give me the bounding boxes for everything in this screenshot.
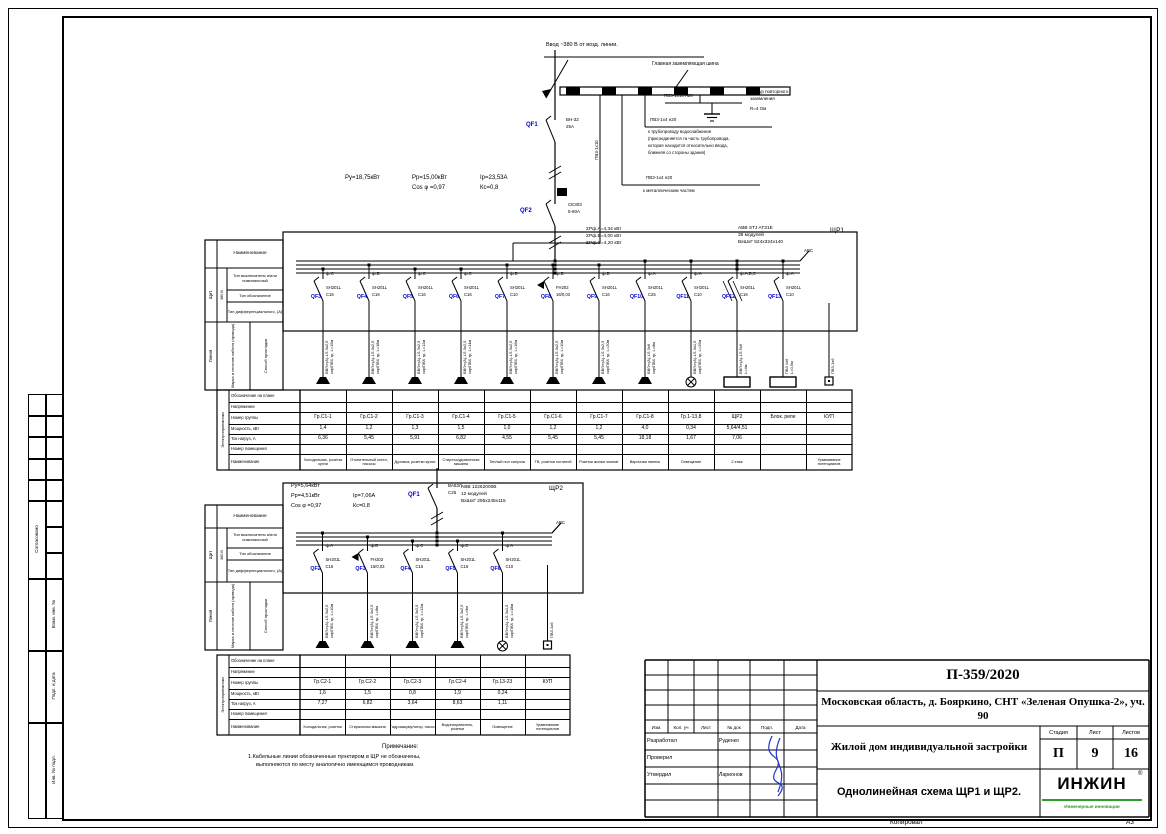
- meter-type-1: СЕ303: [568, 202, 582, 207]
- p1-ip: Iр=23,53А: [480, 175, 508, 181]
- table-cell: Водонагреватель, розетки: [435, 719, 481, 735]
- cable-label: ВВГнг(А)-LS 3х2,5скр/ПВХ тр, L=10м: [555, 334, 565, 374]
- p2-pp: Рр=4,51кВт: [291, 493, 320, 499]
- table-cell: [760, 454, 807, 470]
- breaker-hook: [590, 277, 595, 281]
- qf2-blade: [546, 204, 555, 226]
- qf-label: QF4: [385, 566, 411, 572]
- cable-label-line: скр/ПВХ тр, L=10м: [329, 598, 334, 638]
- service-drop: [546, 60, 568, 98]
- load-kup-icon: [828, 380, 830, 382]
- breaker-type: SH201L: [418, 285, 433, 290]
- header-liniya: Линия: [205, 582, 217, 650]
- cable-label-line: скр/ПВХ тр, L=18м: [509, 598, 514, 638]
- header-volt: 380 В: [217, 268, 227, 322]
- phase-label: ф.В: [371, 543, 379, 548]
- p1-pp: Рр=15,00кВт: [412, 175, 447, 181]
- lists-value: 16: [1113, 740, 1149, 768]
- header-shchit: Щит: [205, 268, 217, 322]
- gzsh-segment: [710, 87, 724, 95]
- doc-number: П-359/2020: [818, 661, 1148, 690]
- name-approved: Ларионов: [719, 772, 742, 778]
- breaker-hook: [314, 277, 319, 281]
- breaker-hook: [728, 277, 733, 281]
- load-socket-icon: [546, 377, 560, 384]
- ground-resistance: R=4 Ом: [750, 106, 766, 111]
- table-cell: Варочная панель: [622, 454, 669, 470]
- breaker-type: 16/0,03: [371, 564, 385, 569]
- header-cable: Марка и сечение кабеля (провода): [217, 582, 250, 650]
- gzsh-segment: [566, 87, 580, 95]
- breaker-type: FH202: [556, 285, 569, 290]
- qf-label: QF5: [387, 294, 413, 300]
- qf-label: QF9: [571, 294, 597, 300]
- sheet-title: Однолинейная схема ЩР1 и ЩР2.: [820, 770, 1038, 815]
- note-line-2: выполняются по месту аналогично имеющимс…: [256, 762, 415, 768]
- load-socket-icon: [362, 377, 376, 384]
- breaker-type: SH201L: [326, 285, 341, 290]
- p1-ks: Кс=0,8: [480, 185, 498, 191]
- load-panel-icon: [724, 377, 750, 387]
- logo-reg-mark: ®: [1138, 771, 1142, 777]
- col-list: Лист: [694, 721, 718, 733]
- cable-label-line: скр/ПВХ тр, L=16м: [514, 334, 519, 374]
- table-row-label: Наименование: [229, 719, 302, 735]
- cable-label-line: скр/ПВХ тр, L=9м: [464, 598, 469, 638]
- load-socket-icon: [592, 377, 606, 384]
- p1-bus-mark: АВС: [804, 248, 813, 253]
- p2-qf1-type-2: С25: [448, 490, 456, 495]
- table-cell: Теплый пол санузла: [484, 454, 531, 470]
- breaker-hook: [360, 277, 365, 281]
- cable-label-line: скр/ПВХ тр, L=25м: [698, 334, 703, 374]
- load-kup-icon: [547, 644, 549, 646]
- rcd-flag-icon: [352, 553, 359, 561]
- phase-label: ф.В: [556, 271, 564, 276]
- cable-label: ВВГнг(А)-LS 3х2,5скр/ПВХ тр, L=18м: [371, 334, 381, 374]
- header-shchit: Щит: [205, 528, 217, 582]
- ground-note-1: контур повторного: [750, 89, 788, 94]
- breaker-type: С10: [786, 292, 794, 297]
- lists-label: Листов: [1113, 727, 1149, 739]
- p2-ks: Кс=0,8: [353, 503, 370, 509]
- header-rcd-type: Тип дифференциального, (А): [227, 302, 283, 322]
- margin-cell: [45, 436, 64, 459]
- cable-label: ВВГнг(А)-LS 3х2,5скр/ПВХ тр, L=10м: [325, 598, 335, 638]
- breaker-hook: [498, 277, 503, 281]
- p1-model-1: ABB STJ AT31E: [738, 226, 773, 231]
- header-rcd-type: Тип дифференциального, (А): [227, 560, 283, 582]
- bus-tap: [436, 540, 439, 543]
- breaker-type: FH202: [371, 557, 384, 562]
- p1-sum-c: ΣРф.С=4,20 кВт: [586, 241, 622, 246]
- cable-label-line: скр/ПВХ тр, L=15м: [330, 334, 335, 374]
- cable-label: ВВГнг(А)-LS 3х1,5скр/ПВХ тр, L=25м: [693, 334, 703, 374]
- breaker-hook: [452, 277, 457, 281]
- table-cell: Освещение: [668, 454, 715, 470]
- metal-note: к металлическим частям: [643, 188, 695, 193]
- kopiroval-label: Копировал: [890, 819, 923, 826]
- list-value: 9: [1077, 740, 1113, 768]
- load-socket-icon: [408, 377, 422, 384]
- water-note-2: (присоединяется та часть трубопровода,: [648, 136, 730, 141]
- breaker-type: С10: [506, 564, 514, 569]
- qf1-type-2: 25А: [566, 124, 574, 129]
- load-panel-icon: [770, 377, 796, 387]
- load-socket-icon: [361, 641, 375, 648]
- table-cell: Стир/посудомоечная машина: [438, 454, 485, 470]
- phase-label: ф.С: [326, 271, 334, 276]
- cable-label: ВВГнг(А)-LS 3х2,5скр/ПВХ тр, L=14м: [463, 334, 473, 374]
- margin-cell: [45, 415, 64, 438]
- agreed-label: Согласовано: [28, 500, 45, 578]
- phase-label: ф.С: [464, 271, 472, 276]
- rcd-flag-icon: [537, 281, 544, 289]
- table-cell: Розетки жилых комнат: [576, 454, 623, 470]
- breaker-type: SH201L: [648, 285, 663, 290]
- role-developed: Разработал: [647, 738, 677, 744]
- breaker-type: SH201L: [694, 285, 709, 290]
- col-izm: Изм.: [645, 721, 668, 733]
- qf-label: QF7: [479, 294, 505, 300]
- cable-label: ВВГнг(А)-LS 3х2,5скр/ПВХ тр, L=12м: [417, 334, 427, 374]
- service-drop-arrow: [542, 89, 551, 98]
- header-way: Способ прокладки: [250, 322, 283, 390]
- p1-model-3: ВхШхГ 524х324х140: [738, 240, 783, 245]
- stage-label: Стадия: [1040, 727, 1077, 739]
- logo-text: ИНЖИН: [1042, 774, 1142, 794]
- meter-icon: [557, 188, 567, 196]
- cable-label: ВВГнг(А)-LS 3х1,5скр/ПВХ тр, L=18м: [505, 598, 515, 638]
- water-note-4: ближняя со стороны здания): [648, 150, 705, 155]
- breaker-type: С16: [416, 564, 424, 569]
- table-cell: ТВ, розетки гостиной: [530, 454, 577, 470]
- breaker-type: С16: [418, 292, 426, 297]
- table-cell: Стиральная машина: [345, 719, 391, 735]
- p2-ip: Iр=7,06А: [353, 493, 375, 499]
- inv-label: Инв. № подл.: [45, 722, 62, 817]
- gzsh-segment: [602, 87, 616, 95]
- col-koluch: Кол. уч: [668, 721, 694, 733]
- bus-tap: [436, 536, 439, 539]
- table-cell: Холодильник, розетки кухни: [300, 454, 347, 470]
- qf1-blade: [546, 120, 555, 142]
- breaker-hook: [774, 277, 779, 281]
- header-ep: Электроприемники: [217, 655, 229, 735]
- breaker-hook: [449, 549, 454, 553]
- breaker-hook: [359, 549, 364, 553]
- breaker-hook: [314, 549, 319, 553]
- object-name: Московская область, д. Бояркино, СНТ «Зе…: [820, 692, 1146, 725]
- margin-cell: [45, 500, 64, 528]
- breaker-type: С16: [602, 292, 610, 297]
- breaker-type: SH201L: [464, 285, 479, 290]
- pe-riser-label: ПВ3-1х10: [592, 120, 602, 180]
- header-cable: Марка и сечение кабеля (провода): [217, 322, 250, 390]
- breaker-type: 16/0,03: [556, 292, 570, 297]
- table-cell: 2 этаж: [714, 454, 761, 470]
- p2-pu: Ру=5,64кВт: [291, 483, 320, 489]
- list-label: Лист: [1077, 727, 1113, 739]
- building-name: Жилой дом индивидуальной застройки: [820, 727, 1038, 768]
- breaker-hook: [636, 277, 641, 281]
- header-liniya: Линия: [205, 322, 217, 390]
- p2-bus-mark: АВС: [556, 520, 565, 525]
- qf-label: QF6: [433, 294, 459, 300]
- cable-label: ВВГнг(А)-LS 3х2,5скр/ПВХ тр, L=8м: [370, 598, 380, 638]
- format-label: А3: [1126, 819, 1134, 826]
- p2-model-1: ABB 12262000В: [461, 485, 496, 490]
- feed-label: Ввод ~380 В от возд. линии.: [546, 42, 618, 48]
- breaker-type: SH201L: [461, 557, 476, 562]
- header-volt: 380 В: [217, 528, 227, 582]
- phase-label: ф.А: [506, 543, 514, 548]
- table-row-label: Наименование: [229, 454, 302, 470]
- breaker-type: SH201L: [372, 285, 387, 290]
- breaker-type: SH201L: [506, 557, 521, 562]
- note-title: Примечание:: [382, 744, 418, 750]
- phase-label: ф.С: [461, 543, 469, 548]
- meter-type-2: 5-60А: [568, 209, 580, 214]
- qf-label: QF3: [295, 294, 321, 300]
- breaker-hook: [544, 277, 549, 281]
- breaker-hook: [404, 549, 409, 553]
- breaker-type: С16: [326, 564, 334, 569]
- load-socket-icon: [454, 377, 468, 384]
- breaker-type: С10: [510, 292, 518, 297]
- breaker-type: SH201L: [602, 285, 617, 290]
- header-designation: Тип обозначение: [227, 548, 283, 560]
- p1-model-2: 36 модулей: [738, 233, 764, 238]
- cable-label: ПВ3-1х6: [550, 598, 560, 638]
- breaker-hook: [494, 549, 499, 553]
- p2-cos: Cos φ =0,97: [291, 503, 321, 509]
- vzam-label: Взам. инв. №: [45, 578, 62, 650]
- cable-label-line: L=4м: [744, 334, 749, 374]
- header-way: Способ прокладки: [250, 582, 283, 650]
- p2-qf1-blade: [428, 488, 437, 508]
- metal-cable-label: ПВ3-1х4 н20: [646, 175, 672, 180]
- cable-label: ВВГнг(А)-LS 3х2,5скр/ПВХ тр, L=20м: [601, 334, 611, 374]
- breaker-type: SH201L: [786, 285, 801, 290]
- load-socket-icon: [500, 377, 514, 384]
- margin-cell: [45, 552, 64, 580]
- col-podp: Подп.: [750, 721, 784, 733]
- p1-sum-b: ΣРф.В=4,00 кВт: [586, 234, 621, 239]
- p2-name: ЩР2: [549, 485, 563, 492]
- table-cell: Гидроаккумулятор, насос: [390, 719, 436, 735]
- water-cable-label: ПВ3-1х4 н20: [650, 117, 676, 122]
- qf-label: QF3: [340, 566, 366, 572]
- breaker-type: SH201L: [416, 557, 431, 562]
- qf-label: QF13: [755, 294, 781, 300]
- cable-label: ВВГнг(А)-LS 3х6скр/ПВХ тр, L=8м: [647, 334, 657, 374]
- margin-cell: [45, 394, 64, 417]
- breaker-type: С16: [464, 292, 472, 297]
- bus-tap: [554, 260, 557, 263]
- p2-qf1-hook: [428, 484, 433, 488]
- cable-label-line: скр/ПВХ тр, L=12м: [419, 598, 424, 638]
- phase-label: ф.А,В,С: [740, 271, 756, 276]
- phase-label: ф.А: [694, 271, 702, 276]
- cable-label-line: L=0,5м: [790, 334, 795, 374]
- water-note-1: к трубопроводу водоснабжения: [648, 129, 711, 134]
- p2-model-3: ВхШхГ 295х245х115: [461, 499, 506, 504]
- qf2-label: QF2: [520, 208, 532, 214]
- cable-label-line: скр/ПВХ тр, L=8м: [374, 598, 379, 638]
- p2-qf1-label: QF1: [408, 492, 420, 498]
- p1-cos: Cos φ =0,97: [412, 185, 445, 191]
- header-ep: Электроприемники: [217, 390, 229, 470]
- cable-label-line: скр/ПВХ тр, L=20м: [606, 334, 611, 374]
- phase-label: ф.А: [648, 271, 656, 276]
- drawing-sheet: Ввод ~380 В от возд. линии. Главная зазе…: [0, 0, 1166, 834]
- bus-tap: [554, 264, 557, 267]
- bus-tap: [436, 544, 439, 547]
- gzsh-segment: [638, 87, 652, 95]
- cable-label-line: скр/ПВХ тр, L=18м: [376, 334, 381, 374]
- cable-label: ВВГнг(А)-LS 3х2,5скр/ПВХ тр, L=12м: [415, 598, 425, 638]
- table-cell: Духовка, розетки кухни: [392, 454, 439, 470]
- logo-tagline: Инженерные инновации: [1042, 799, 1142, 811]
- table-cell: Освещение: [480, 719, 526, 735]
- water-note-3: которая находится относительно ввода,: [648, 143, 728, 148]
- role-approved: Утвердил: [647, 772, 671, 778]
- qf-label: QF10: [617, 294, 643, 300]
- breaker-hook: [682, 277, 687, 281]
- qf-label: QF2: [295, 566, 321, 572]
- breaker-type: SH201L: [326, 557, 341, 562]
- name-developed: Руденко: [719, 738, 739, 744]
- header-naimenovanie: Наименование: [217, 505, 283, 528]
- breaker-type: SH201L: [510, 285, 525, 290]
- cable-label-line: скр/ПВХ тр, L=14м: [468, 334, 473, 374]
- cable-label-line: скр/ПВХ тр, L=10м: [560, 334, 565, 374]
- phase-label: ф.А: [786, 271, 794, 276]
- breaker-type: С16: [326, 292, 334, 297]
- p1-name: ЩР1: [830, 227, 844, 234]
- load-socket-icon: [451, 641, 465, 648]
- load-socket-icon: [638, 377, 652, 384]
- gzsh-leader: [676, 70, 688, 87]
- qf1-hook: [546, 116, 551, 120]
- breaker-hook: [406, 277, 411, 281]
- margin-cell: [45, 458, 64, 481]
- load-socket-icon: [406, 641, 420, 648]
- margin-cell: [45, 479, 64, 502]
- gzsh-label: Главная заземляющая шина: [652, 61, 719, 67]
- breaker-type: С16: [372, 292, 380, 297]
- qf-label: QF11: [663, 294, 689, 300]
- col-dok: № док: [718, 721, 750, 733]
- phase-label: ф.С: [418, 271, 426, 276]
- load-socket-icon: [316, 377, 330, 384]
- phase-label: ф.В: [510, 271, 518, 276]
- qf-label: QF4: [341, 294, 367, 300]
- phase-label: ф.С: [416, 543, 424, 548]
- p1-pu: Ру=18,75кВт: [345, 175, 380, 181]
- phase-label: ф.А: [326, 543, 334, 548]
- margin-cell: [45, 526, 64, 554]
- p2-model-2: 12 модулей: [461, 492, 487, 497]
- cable-label-line: ПВ3-1х6: [550, 598, 555, 638]
- cable-label-line: ПВ3-1х6: [831, 334, 836, 374]
- cable-label: ВВГнг(А)-LS 3х2,5скр/ПВХ тр, L=16м: [509, 334, 519, 374]
- ground-note-2: заземления: [750, 96, 775, 101]
- header-breaker-type: Тип выключателя и/или номинальный: [227, 268, 283, 290]
- cable-label-line: скр/ПВХ тр, L=8м: [652, 334, 657, 374]
- cable-label: ВВГнг(А)-LS 3х2,5скр/ПВХ тр, L=9м: [460, 598, 470, 638]
- table-cell: Уравнивание потенциалов: [525, 719, 570, 735]
- qf-label: QF12: [709, 294, 735, 300]
- load-socket-icon: [316, 641, 330, 648]
- cable-label: ПВ3-1х6: [831, 334, 841, 374]
- phase-label: ф.В: [602, 271, 610, 276]
- qf-label: QF6: [475, 566, 501, 572]
- breaker-type: С16: [740, 292, 748, 297]
- cable-label: ПВ3 1х6L=0,5м: [785, 334, 795, 374]
- podp-label: Подп. и дата: [45, 650, 62, 722]
- qf1-type-1: ВН-32: [566, 117, 579, 122]
- ground-cable-label: ПВ3-1х10 н20: [664, 93, 693, 98]
- header-designation: Тип обозначение: [227, 290, 283, 302]
- bus-tap: [436, 532, 439, 535]
- table-cell: Холодильник, розетки: [300, 719, 346, 735]
- signature: [769, 736, 782, 796]
- qf1-label: QF1: [526, 122, 538, 128]
- p1-sum-a: ΣРф.А=4,34 кВт: [586, 227, 621, 232]
- cable-label-line: скр/ПВХ тр, L=12м: [422, 334, 427, 374]
- breaker-type: С16: [461, 564, 469, 569]
- p2-qf1-type-1: ВА63Л: [448, 483, 462, 488]
- header-breaker-type: Тип выключателя и/или номинальный: [227, 528, 283, 548]
- col-data: Дата: [784, 721, 817, 733]
- qf-label: QF8: [525, 294, 551, 300]
- table-cell: Отопительный котел, насосы: [346, 454, 393, 470]
- qf2-hook: [546, 200, 551, 204]
- table-cell: Уравнивание потенциалов: [806, 454, 852, 470]
- note-line-1: 1.Кабельные линии обозначенные пунктиром…: [248, 754, 421, 760]
- breaker-type: С10: [694, 292, 702, 297]
- breaker-type: SH201L: [740, 285, 755, 290]
- phase-label: ф.В: [372, 271, 380, 276]
- cable-label: ВВГнг(А)-LS 3х2,5скр/ПВХ тр, L=15м: [325, 334, 335, 374]
- cable-label: ВВГнг(А)-LS 5х6L=4м: [739, 334, 749, 374]
- header-naimenovanie: Наименование: [217, 240, 283, 268]
- stage-value: П: [1040, 740, 1077, 768]
- role-checked: Проверил: [647, 755, 672, 761]
- qf-label: QF5: [430, 566, 456, 572]
- breaker-type: С25: [648, 292, 656, 297]
